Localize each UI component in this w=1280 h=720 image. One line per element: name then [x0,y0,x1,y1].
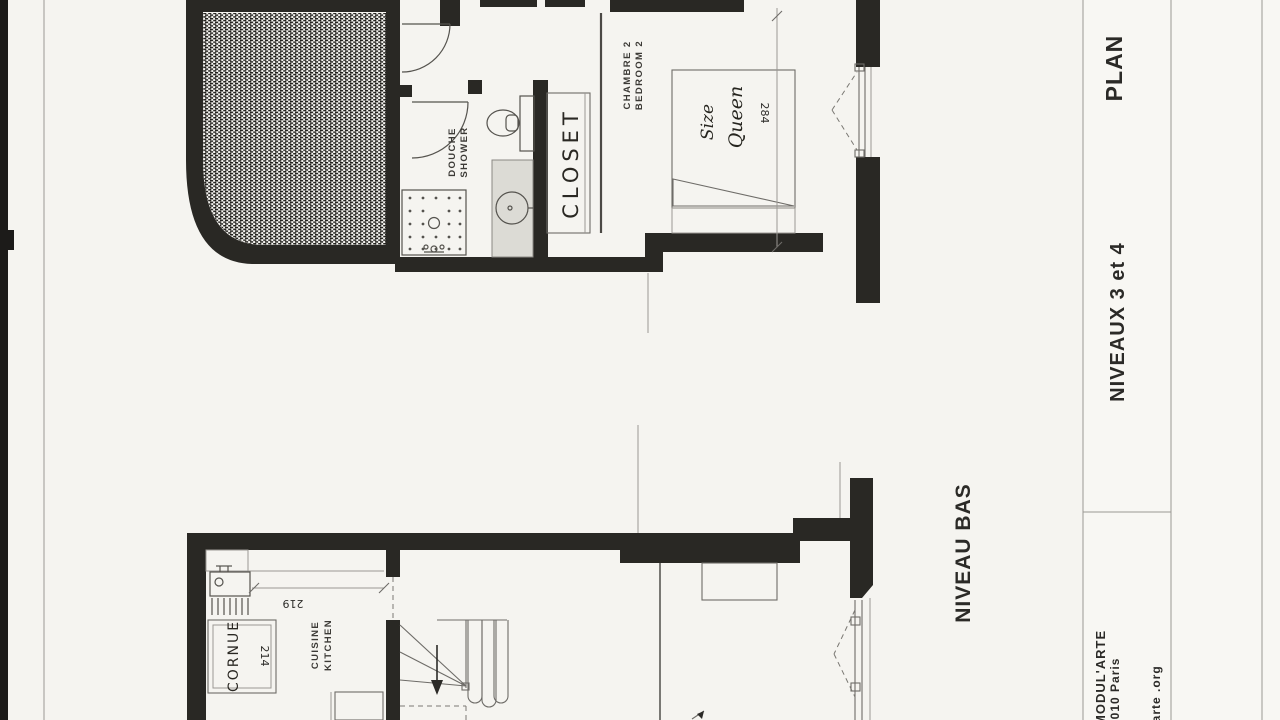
bedroom-label-en: BEDROOM 2 [634,40,645,110]
kitchen-dimension-value: 219 [283,597,304,610]
levels-label: NIVEAUX 3 et 4 [1107,242,1129,402]
bed-note-size: Size [698,104,718,140]
sheet-title: PLAN [1101,35,1127,102]
closet-handwritten-note: CLOSET [559,107,583,219]
level-low-label: NIVEAU BAS [952,483,975,623]
kitchen-label-en: KITCHEN [323,619,334,671]
washbasin-vanity [492,160,534,257]
firm-address: 5010 Paris [1108,658,1122,720]
shower-label-en: SHOWER [459,126,470,177]
bedroom-label-fr: CHAMBRE 2 [622,40,633,109]
firm-website: ularte .org [1149,665,1163,720]
shower-label-fr: DOUCHE [447,127,458,177]
hatched-void-area [203,13,386,245]
floorplan-drawing: CHAMBRE 2 BEDROOM 2 DOUCHE SHOWER CLOSET… [0,0,1280,720]
scanned-floorplan-sheet: CHAMBRE 2 BEDROOM 2 DOUCHE SHOWER CLOSET… [0,0,1280,720]
bed-dimension-value: 284 [758,103,771,124]
bed-note-queen: Queen [725,86,747,149]
kitchen-label-fr: CUISINE [310,621,321,669]
firm-name: MODUL'ARTE [1093,630,1108,720]
range-handwritten-note: CORNUE [226,620,242,692]
range-dimension-value: 214 [258,646,271,667]
